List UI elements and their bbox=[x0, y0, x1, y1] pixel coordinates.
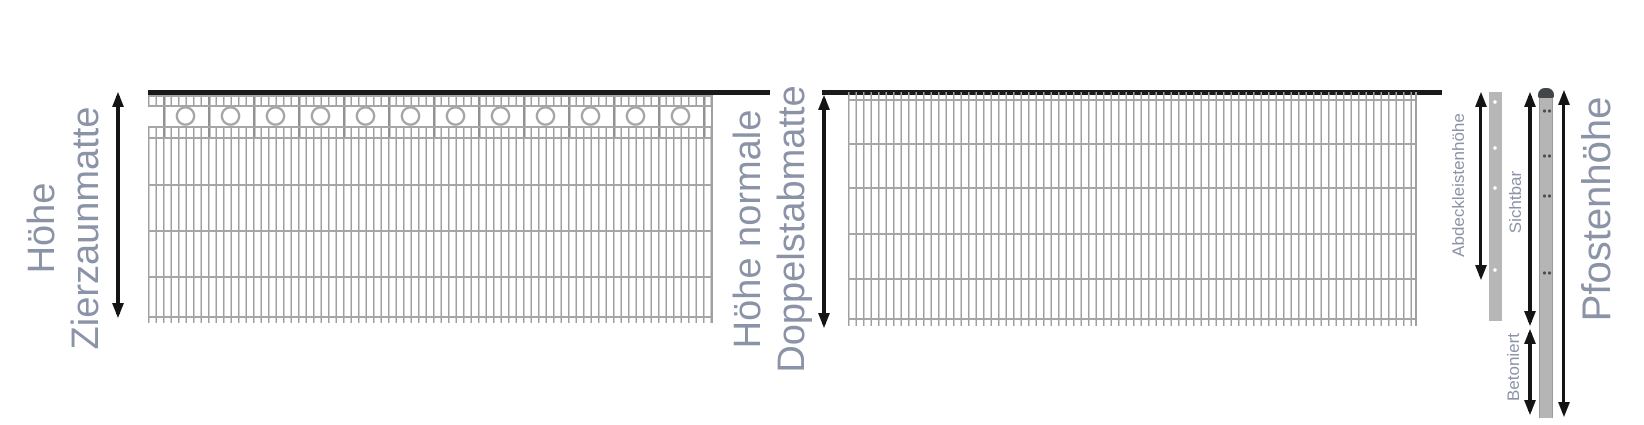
fence-measurement-diagram: Höhe Zierzaunmatte Höhe normale Doppelst… bbox=[0, 0, 1644, 425]
label-line: Pfostenhöhe bbox=[1574, 97, 1620, 322]
pfosten-height-arrow bbox=[1556, 90, 1571, 417]
mesh-right-edge-bar bbox=[711, 95, 713, 323]
mesh-wire bbox=[848, 99, 1417, 101]
arrowhead-down-icon bbox=[112, 303, 124, 318]
label-pfosten-height: Pfostenhöhe bbox=[1572, 101, 1622, 317]
arrowhead-down-icon bbox=[1475, 265, 1487, 280]
mesh-wire bbox=[148, 230, 713, 232]
doppelstab-fence-panel bbox=[848, 90, 1417, 326]
mesh-wire bbox=[148, 184, 713, 186]
arrow-shaft bbox=[1479, 96, 1482, 276]
label-line: Höhe bbox=[20, 183, 64, 274]
mesh-wire bbox=[848, 187, 1417, 189]
mesh-wire bbox=[148, 276, 713, 278]
decorative-circle-band bbox=[163, 106, 706, 126]
mesh-right-edge-bar bbox=[1415, 92, 1417, 326]
post-cap bbox=[1538, 88, 1554, 98]
label-abdeckleiste-height: Abdeckleistenhöhe bbox=[1448, 105, 1470, 265]
post-holes bbox=[1540, 194, 1552, 198]
mesh-wire bbox=[848, 233, 1417, 235]
zierzaunmatte-height-arrow bbox=[111, 92, 126, 318]
betoniert-depth-arrow bbox=[1523, 329, 1538, 415]
mesh-bars-body bbox=[848, 92, 1417, 326]
label-betoniert: Betoniert bbox=[1504, 329, 1524, 405]
zierzaun-fence-panel bbox=[148, 90, 713, 323]
arrow-shaft bbox=[1528, 96, 1531, 322]
label-line: Betoniert bbox=[1504, 333, 1524, 401]
fence-post bbox=[1539, 88, 1553, 418]
mesh-wire bbox=[148, 316, 713, 318]
label-zierzaunmatte-height: Höhe Zierzaunmatte bbox=[18, 88, 110, 368]
arrowhead-down-icon bbox=[1524, 400, 1536, 415]
label-line: Doppelstabmatte bbox=[770, 85, 814, 372]
arrow-shaft bbox=[822, 99, 825, 324]
cover-strip bbox=[1489, 92, 1502, 321]
label-line: Höhe normale bbox=[726, 110, 770, 349]
arrow-shaft bbox=[116, 96, 119, 314]
mesh-wire bbox=[848, 318, 1417, 320]
post-body bbox=[1539, 96, 1553, 418]
mesh-wire bbox=[848, 143, 1417, 145]
post-holes bbox=[1540, 109, 1552, 113]
post-holes bbox=[1540, 271, 1552, 275]
post-holes bbox=[1540, 154, 1552, 158]
doppelstabmatte-height-arrow bbox=[817, 95, 832, 328]
label-line: Zierzaunmatte bbox=[64, 107, 108, 350]
abdeckleiste-height-arrow bbox=[1473, 92, 1488, 280]
mesh-wire bbox=[148, 95, 713, 97]
mesh-wire bbox=[148, 137, 713, 139]
mesh-wire bbox=[848, 278, 1417, 280]
mesh-wire bbox=[148, 126, 713, 128]
arrowhead-down-icon bbox=[1558, 402, 1570, 417]
label-line: Abdeckleistenhöhe bbox=[1449, 113, 1469, 257]
sichtbar-height-arrow bbox=[1523, 92, 1538, 326]
label-doppelstabmatte-height: Höhe normale Doppelstabmatte bbox=[724, 79, 816, 379]
arrow-shaft bbox=[1562, 94, 1565, 413]
arrowhead-down-icon bbox=[1524, 311, 1536, 326]
arrowhead-down-icon bbox=[818, 313, 830, 328]
mesh-wire bbox=[148, 105, 713, 107]
